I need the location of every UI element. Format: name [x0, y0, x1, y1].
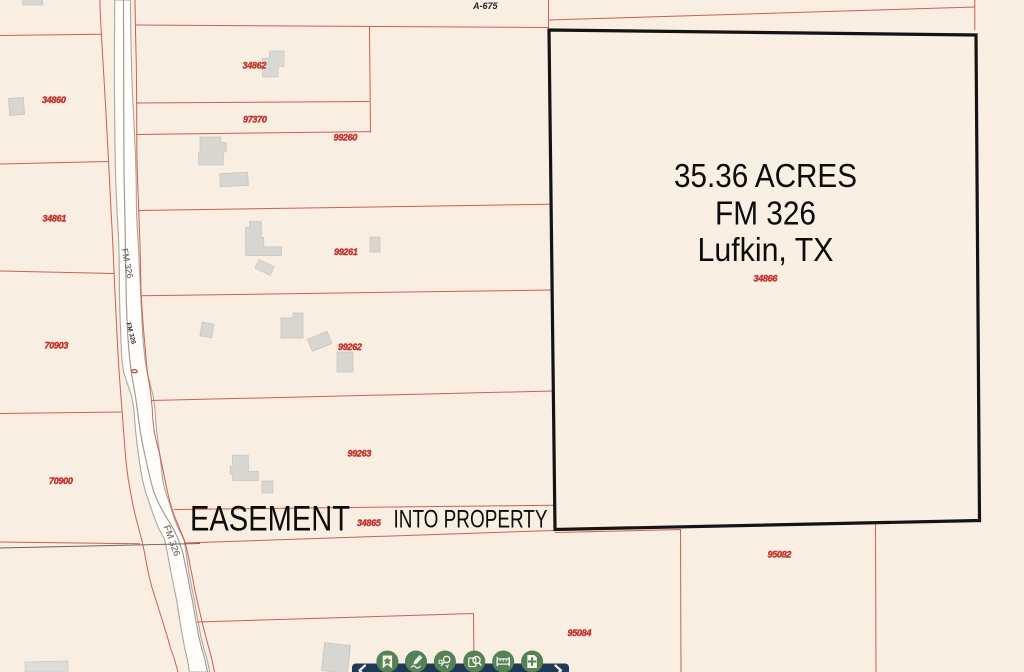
svg-text:70903: 70903 [45, 341, 69, 351]
svg-text:35.36 ACRES: 35.36 ACRES [674, 157, 857, 194]
svg-text:99260: 99260 [334, 133, 358, 143]
svg-text:Lufkin, TX: Lufkin, TX [698, 231, 834, 268]
svg-text:34860: 34860 [42, 95, 66, 105]
svg-text:EASEMENT: EASEMENT [190, 500, 350, 539]
svg-text:70900: 70900 [49, 476, 73, 486]
svg-text:99263: 99263 [348, 449, 372, 459]
svg-text:FM 326: FM 326 [715, 195, 816, 232]
svg-text:INTO PROPERTY: INTO PROPERTY [394, 506, 548, 534]
svg-text:A-675: A-675 [472, 1, 499, 11]
svg-text:97370: 97370 [243, 115, 267, 125]
svg-text:95084: 95084 [568, 628, 592, 638]
svg-text:34866: 34866 [754, 274, 779, 284]
svg-text:34861: 34861 [43, 214, 67, 224]
svg-text:99262: 99262 [338, 342, 362, 352]
svg-text:34862: 34862 [243, 61, 267, 71]
svg-text:34865: 34865 [357, 518, 382, 528]
svg-text:95082: 95082 [768, 550, 792, 560]
svg-text:99261: 99261 [334, 247, 358, 257]
